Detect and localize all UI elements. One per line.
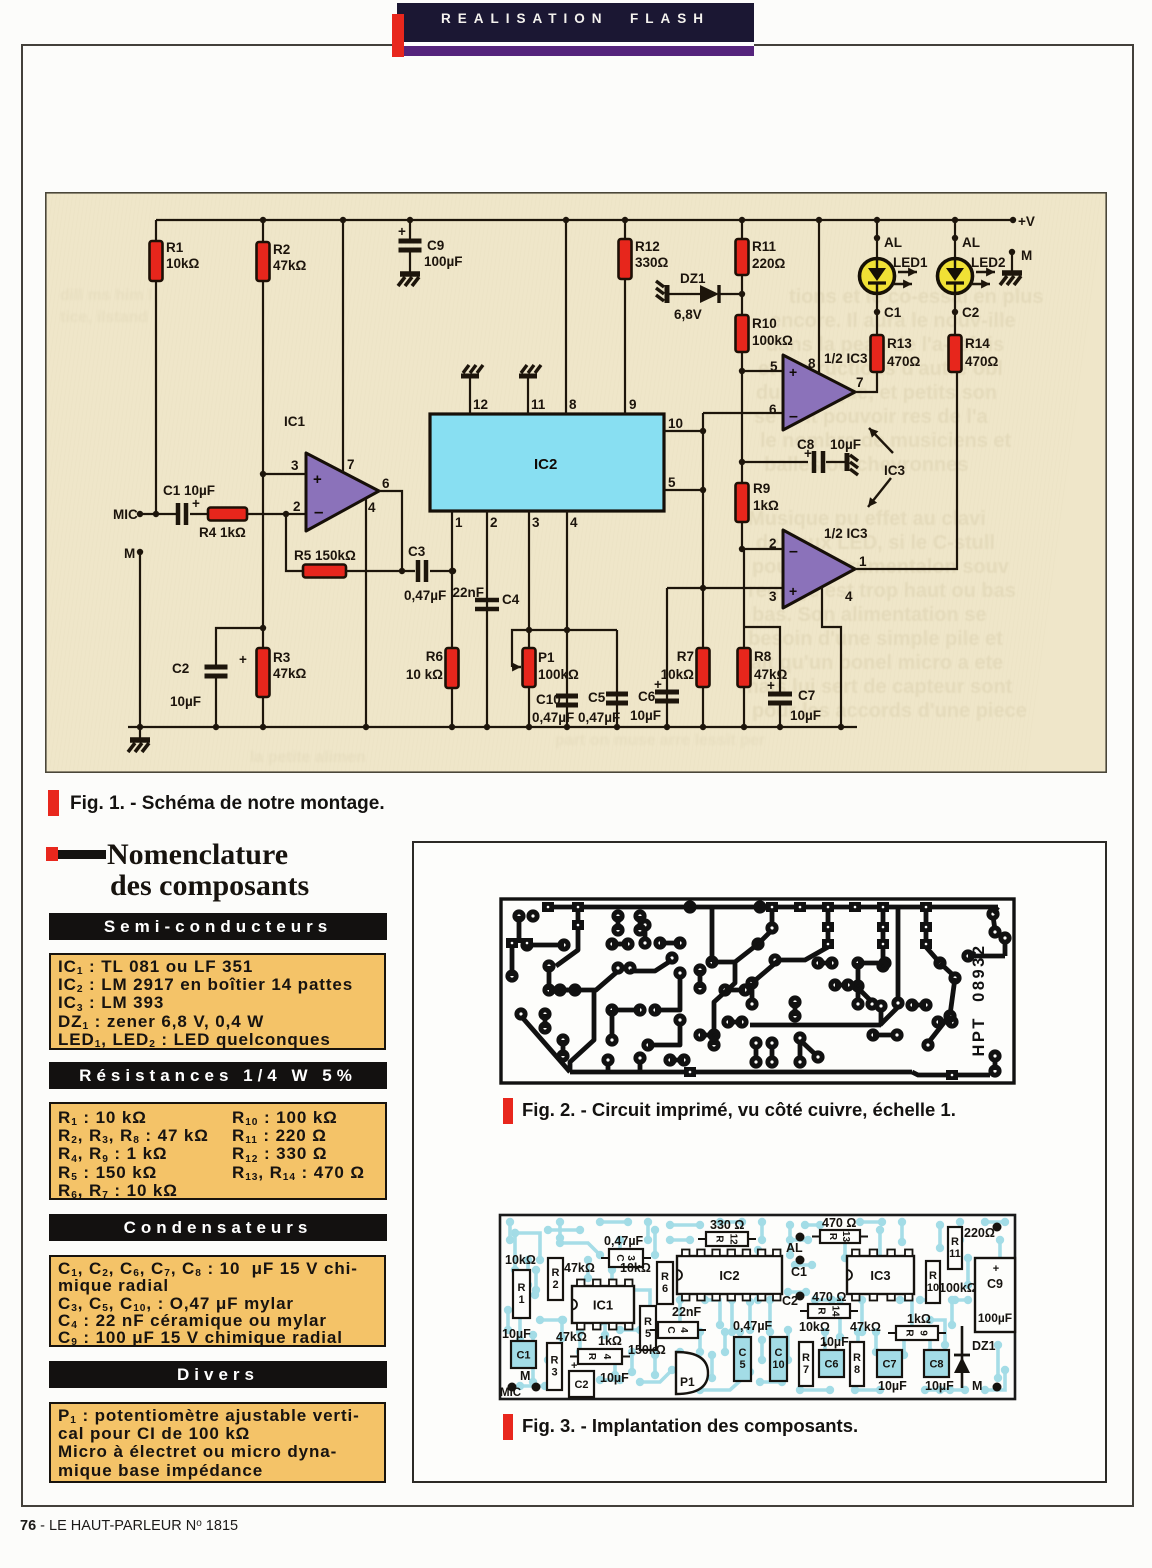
svg-text:LED2: LED2 (971, 255, 1006, 270)
svg-text:10kΩ: 10kΩ (620, 1261, 651, 1275)
svg-text:C: C (775, 1347, 783, 1359)
svg-text:1kΩ: 1kΩ (907, 1312, 931, 1326)
svg-text:0,47µF: 0,47µF (532, 710, 574, 725)
svg-text:C1 10µF: C1 10µF (163, 483, 215, 498)
svg-text:11: 11 (949, 1248, 961, 1260)
svg-text:C2: C2 (172, 661, 189, 676)
svg-text:C2: C2 (962, 305, 979, 320)
svg-text:1: 1 (455, 515, 463, 530)
svg-text:+: + (789, 583, 797, 599)
svg-text:IC1: IC1 (284, 414, 306, 429)
svg-text:part on muse arre lessit per: part on muse arre lessit per (555, 732, 765, 749)
svg-text:470 Ω: 470 Ω (812, 1290, 846, 1304)
svg-text:+: + (398, 224, 406, 239)
svg-text:47kΩ: 47kΩ (273, 666, 307, 681)
svg-text:100µF: 100µF (424, 254, 463, 269)
svg-text:C9: C9 (987, 1277, 1003, 1291)
svg-text:+: + (993, 1263, 999, 1275)
svg-text:4: 4 (601, 1354, 612, 1360)
svg-text:C3: C3 (408, 544, 426, 559)
svg-text:8: 8 (854, 1364, 860, 1376)
svg-text:+: + (804, 446, 812, 461)
svg-text:R: R (586, 1353, 597, 1361)
svg-text:5: 5 (739, 1359, 745, 1371)
svg-text:22nF: 22nF (672, 1305, 702, 1319)
svg-text:LED1: LED1 (893, 255, 928, 270)
svg-text:R11: R11 (752, 239, 777, 254)
svg-text:–: – (789, 543, 798, 560)
svg-text:47kΩ: 47kΩ (564, 1261, 595, 1275)
svg-text:R8: R8 (754, 649, 772, 664)
svg-text:470Ω: 470Ω (887, 354, 921, 369)
svg-text:10µF: 10µF (878, 1379, 907, 1393)
svg-text:AL: AL (786, 1241, 803, 1255)
svg-text:C4: C4 (502, 592, 520, 607)
svg-text:IC2: IC2 (719, 1268, 739, 1283)
svg-text:R14: R14 (965, 336, 990, 351)
svg-text:R: R (827, 1233, 838, 1241)
svg-text:C8: C8 (929, 1359, 943, 1371)
svg-text:12: 12 (728, 1233, 739, 1245)
svg-text:3: 3 (769, 589, 777, 604)
svg-text:6: 6 (769, 402, 777, 417)
svg-text:C7: C7 (798, 688, 815, 703)
svg-text:+: + (192, 496, 200, 511)
svg-text:R: R (714, 1235, 725, 1243)
svg-text:R: R (816, 1307, 827, 1315)
svg-text:330Ω: 330Ω (635, 255, 669, 270)
svg-text:+: + (789, 364, 797, 380)
svg-text:100kΩ: 100kΩ (939, 1281, 977, 1295)
svg-text:1: 1 (518, 1294, 524, 1306)
svg-text:HPT 08932: HPT 08932 (970, 943, 988, 1056)
svg-text:0,47µF: 0,47µF (604, 1234, 644, 1248)
svg-text:3: 3 (532, 515, 540, 530)
svg-text:balles ou chevronnes: balles ou chevronnes (764, 454, 969, 476)
svg-text:10kΩ: 10kΩ (166, 256, 200, 271)
svg-text:C6: C6 (824, 1359, 838, 1371)
svg-text:6: 6 (382, 476, 390, 491)
svg-text:+V: +V (1018, 214, 1035, 229)
svg-text:10µF: 10µF (170, 694, 201, 709)
svg-text:R: R (551, 1355, 559, 1367)
svg-text:R7: R7 (677, 649, 694, 664)
svg-text:10kΩ: 10kΩ (505, 1253, 536, 1267)
svg-text:7: 7 (856, 375, 864, 390)
svg-text:2: 2 (293, 499, 301, 514)
svg-text:11: 11 (531, 397, 546, 412)
svg-text:R2: R2 (273, 242, 290, 257)
svg-text:C1: C1 (884, 305, 902, 320)
svg-text:12: 12 (473, 397, 488, 412)
svg-text:la petite alimen: la petite alimen (250, 749, 366, 766)
svg-text:+: + (313, 471, 322, 488)
svg-text:220Ω: 220Ω (964, 1226, 995, 1240)
svg-text:1kΩ: 1kΩ (598, 1334, 622, 1348)
svg-text:100µF: 100µF (978, 1311, 1012, 1325)
svg-text:8: 8 (808, 356, 816, 371)
svg-text:2: 2 (490, 515, 498, 530)
svg-text:+: + (822, 1340, 828, 1351)
svg-text:8: 8 (569, 397, 577, 412)
svg-text:M: M (972, 1379, 982, 1393)
svg-text:100kΩ: 100kΩ (752, 333, 793, 348)
svg-text:R: R (661, 1271, 669, 1283)
svg-text:4: 4 (570, 515, 578, 530)
svg-text:R13: R13 (887, 336, 912, 351)
svg-text:1/2 IC3: 1/2 IC3 (824, 526, 868, 541)
svg-text:1: 1 (859, 554, 867, 569)
svg-text:10µF: 10µF (925, 1379, 954, 1393)
svg-text:DZ1: DZ1 (972, 1339, 996, 1353)
svg-text:22nF: 22nF (452, 585, 484, 600)
svg-text:3: 3 (551, 1367, 557, 1379)
svg-text:R6: R6 (426, 649, 444, 664)
svg-text:1kΩ: 1kΩ (753, 498, 779, 513)
svg-text:R12: R12 (635, 239, 660, 254)
svg-text:R9: R9 (753, 481, 770, 496)
svg-text:6: 6 (662, 1283, 668, 1295)
svg-text:IC1: IC1 (593, 1298, 613, 1313)
svg-text:6,8V: 6,8V (674, 307, 702, 322)
svg-text:AL: AL (962, 235, 980, 250)
svg-text:R: R (929, 1270, 937, 1282)
svg-text:C9: C9 (427, 238, 444, 253)
svg-text:150kΩ: 150kΩ (628, 1343, 666, 1357)
svg-text:P1: P1 (538, 650, 555, 665)
svg-text:besoin d'une simple pile et: besoin d'une simple pile et (748, 628, 1003, 650)
svg-text:1/2 IC3: 1/2 IC3 (824, 351, 868, 366)
svg-text:P1: P1 (680, 1375, 695, 1389)
svg-text:tice, ilstand: tice, ilstand (60, 309, 148, 326)
svg-text:C5: C5 (588, 690, 606, 705)
svg-text:0,47µF: 0,47µF (578, 710, 620, 725)
svg-text:10 kΩ: 10 kΩ (406, 667, 443, 682)
svg-text:3: 3 (291, 458, 299, 473)
svg-text:+: + (239, 652, 247, 667)
svg-text:2: 2 (552, 1279, 558, 1291)
svg-text:470 Ω: 470 Ω (822, 1216, 856, 1230)
svg-text:9: 9 (918, 1330, 929, 1336)
svg-text:10kΩ: 10kΩ (799, 1320, 830, 1334)
svg-text:C10: C10 (536, 692, 561, 707)
svg-text:4: 4 (845, 589, 853, 604)
svg-text:5: 5 (668, 475, 676, 490)
svg-text:R10: R10 (752, 316, 777, 331)
svg-text:C: C (665, 1326, 676, 1333)
svg-text:MIC: MIC (500, 1387, 521, 1399)
svg-text:7: 7 (347, 457, 355, 472)
svg-text:R4 1kΩ: R4 1kΩ (199, 525, 246, 540)
svg-text:10kΩ: 10kΩ (661, 667, 695, 682)
svg-text:C1: C1 (516, 1350, 530, 1362)
svg-text:10µF: 10µF (600, 1371, 629, 1385)
svg-text:7: 7 (803, 1364, 809, 1376)
svg-text:0,47µF: 0,47µF (733, 1319, 773, 1333)
svg-text:10: 10 (668, 416, 683, 431)
svg-text:R: R (951, 1236, 959, 1248)
svg-text:47kΩ: 47kΩ (850, 1320, 881, 1334)
svg-text:9: 9 (629, 397, 637, 412)
svg-text:100kΩ: 100kΩ (538, 667, 579, 682)
svg-text:R3: R3 (273, 650, 291, 665)
svg-text:R: R (904, 1329, 915, 1337)
svg-text:220Ω: 220Ω (752, 256, 786, 271)
svg-text:13: 13 (840, 1231, 851, 1243)
svg-text:M: M (520, 1369, 530, 1383)
svg-text:C7: C7 (882, 1359, 896, 1371)
svg-text:M: M (1021, 248, 1032, 263)
svg-text:M: M (124, 546, 135, 561)
svg-text:330 Ω: 330 Ω (710, 1218, 744, 1232)
svg-text:C1: C1 (791, 1265, 807, 1279)
svg-text:tions et le co-essai en plus: tions et le co-essai en plus (789, 286, 1044, 308)
svg-text:R: R (644, 1316, 652, 1328)
svg-text:R: R (853, 1352, 861, 1364)
svg-text:+: + (767, 678, 775, 693)
svg-text:AL: AL (884, 235, 902, 250)
svg-text:4: 4 (678, 1327, 689, 1333)
svg-text:–: – (314, 502, 323, 521)
svg-text:C: C (739, 1347, 747, 1359)
svg-text:10µF: 10µF (830, 437, 861, 452)
svg-text:14: 14 (830, 1305, 841, 1317)
svg-text:R: R (802, 1352, 810, 1364)
svg-text:4: 4 (368, 500, 376, 515)
svg-text:MIC: MIC (113, 507, 138, 522)
svg-text:dill ms him l: dill ms him l (60, 287, 152, 304)
svg-text:0,47µF: 0,47µF (404, 588, 446, 603)
svg-text:47kΩ: 47kΩ (556, 1330, 587, 1344)
svg-text:10: 10 (927, 1282, 939, 1294)
svg-text:10µF: 10µF (502, 1327, 531, 1341)
svg-text:R5 150kΩ: R5 150kΩ (294, 548, 356, 563)
svg-text:IC3: IC3 (870, 1268, 890, 1283)
svg-text:DZ1: DZ1 (680, 271, 706, 286)
svg-text:R1: R1 (166, 240, 184, 255)
svg-text:R: R (518, 1282, 526, 1294)
svg-text:–: – (789, 408, 798, 425)
svg-text:C2: C2 (574, 1379, 588, 1391)
svg-text:10µF: 10µF (630, 708, 661, 723)
svg-text:IC3: IC3 (884, 463, 906, 478)
svg-text:10µF: 10µF (790, 708, 821, 723)
svg-text:IC2: IC2 (534, 456, 557, 473)
svg-text:470Ω: 470Ω (965, 354, 999, 369)
svg-text:R: R (552, 1267, 560, 1279)
svg-text:47kΩ: 47kΩ (273, 258, 307, 273)
svg-text:10: 10 (772, 1359, 784, 1371)
svg-text:+: + (571, 1360, 577, 1372)
